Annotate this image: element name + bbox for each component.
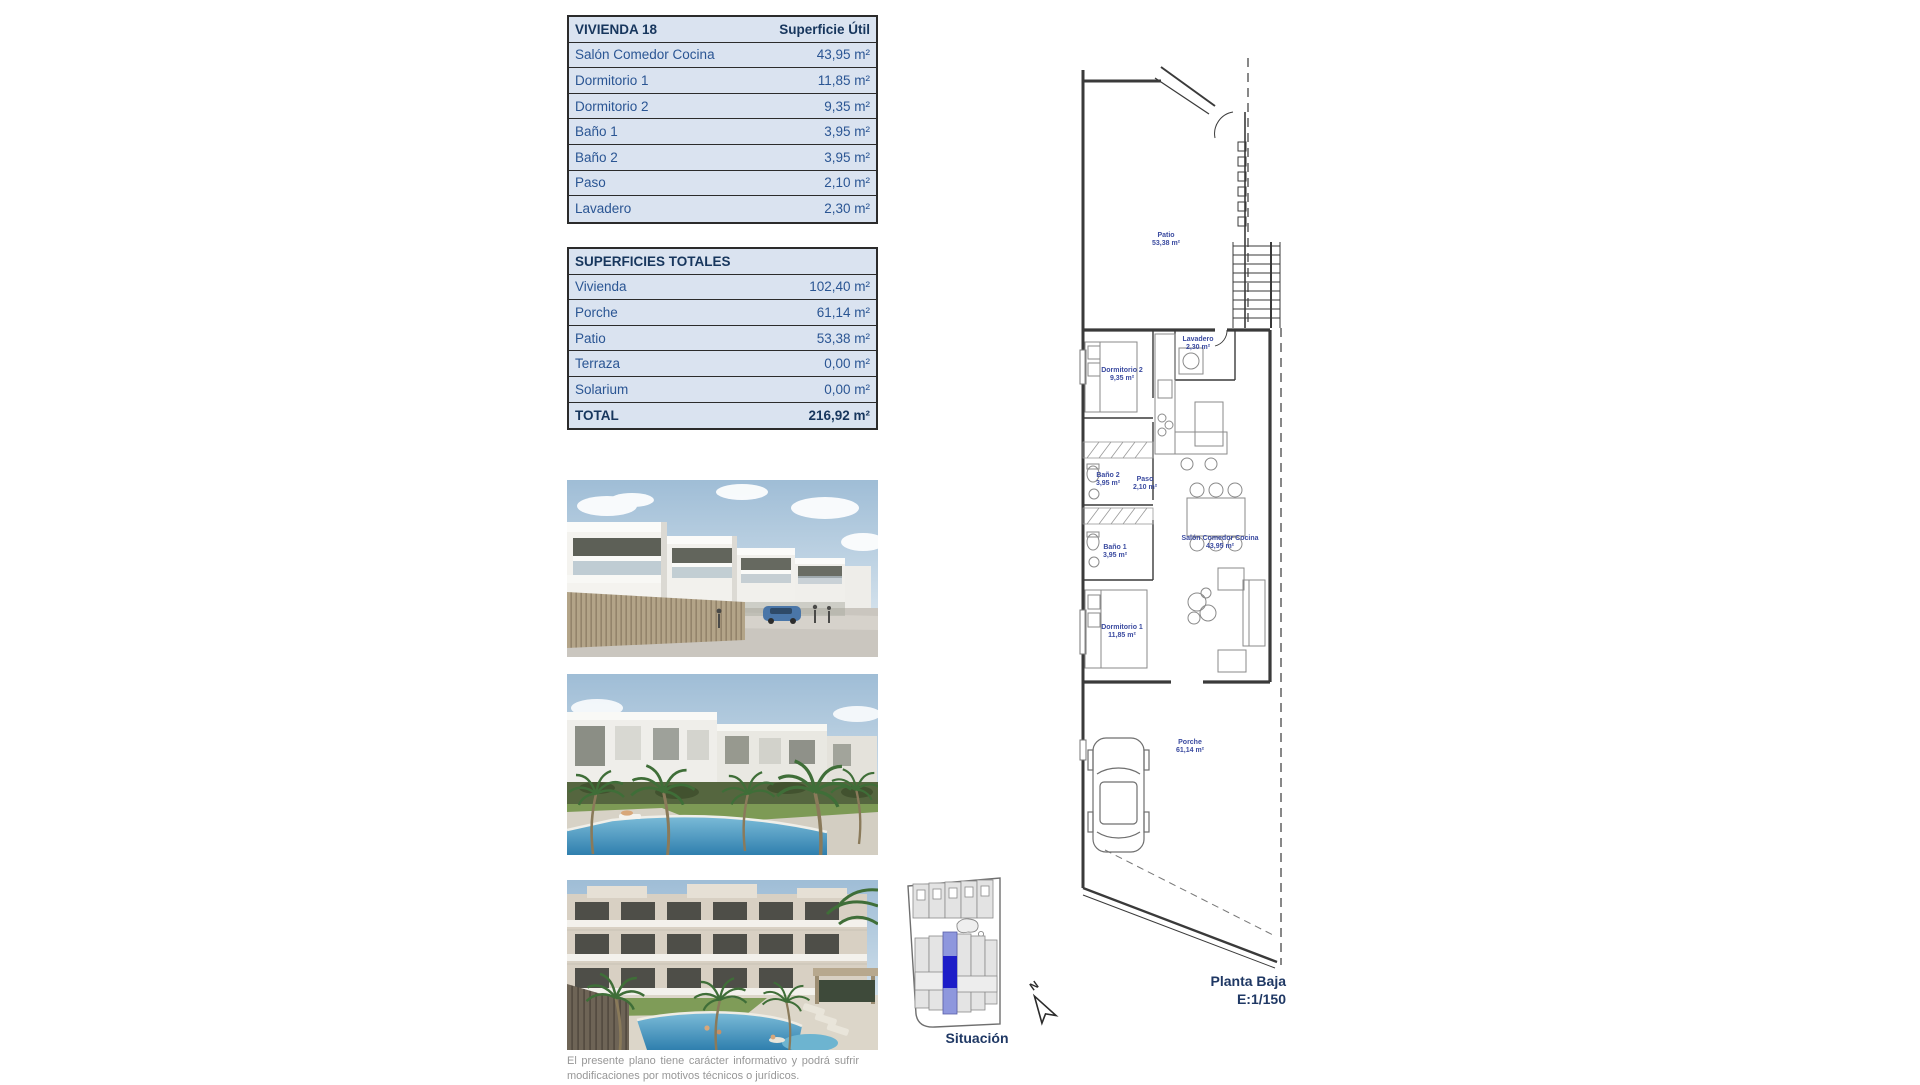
- table-row: Dormitorio 2 9,35 m²: [569, 94, 876, 120]
- table-row: Dormitorio 1 11,85 m²: [569, 68, 876, 94]
- row-label: Paso: [575, 175, 606, 190]
- total-value: 216,92 m²: [808, 408, 870, 423]
- disclaimer-line-1: El presente plano tiene carácter informa…: [567, 1054, 859, 1069]
- row-label: Lavadero: [575, 201, 631, 216]
- render-photo-2-graphic: [567, 674, 878, 855]
- room-area: 3,95 m²: [1090, 552, 1140, 560]
- room-label-dormitorio-1: Dormitorio 1 11,85 m²: [1087, 624, 1157, 641]
- highlighted-unit: [943, 956, 957, 988]
- room-label-bano-1: Baño 1 3,95 m²: [1090, 544, 1140, 561]
- table-row: Vivienda 102,40 m²: [569, 275, 876, 301]
- row-value: 0,00 m²: [824, 356, 870, 371]
- room-label-lavadero: Lavadero 2,30 m²: [1167, 336, 1229, 353]
- room-name: Dormitorio 1: [1087, 624, 1157, 632]
- row-label: Vivienda: [575, 279, 627, 294]
- render-photo-apartments-pool: [567, 880, 878, 1050]
- table-header-value: Superficie Útil: [779, 22, 870, 37]
- row-label: Baño 2: [575, 150, 618, 165]
- table-row: Porche 61,14 m²: [569, 300, 876, 326]
- table-header-row: VIVIENDA 18 Superficie Útil: [569, 17, 876, 43]
- table-title: SUPERFICIES TOTALES: [575, 254, 731, 269]
- floor-plan: Patio 53,38 m² Lavadero 2,30 m² Dormitor…: [1075, 50, 1345, 1010]
- room-label-porche: Porche 61,14 m²: [1160, 739, 1220, 756]
- room-area: 3,95 m²: [1083, 480, 1133, 488]
- plan-title: Planta Baja: [1136, 973, 1286, 991]
- north-letter: N: [1028, 979, 1042, 993]
- superficies-totales-table: SUPERFICIES TOTALES Vivienda 102,40 m² P…: [567, 247, 878, 430]
- table-row: Solarium 0,00 m²: [569, 377, 876, 403]
- row-label: Porche: [575, 305, 618, 320]
- room-area: 2,10 m²: [1127, 484, 1163, 492]
- render-photo-pool-palms: [567, 674, 878, 855]
- north-arrow-icon: N: [1020, 975, 1070, 1037]
- table-row: Terraza 0,00 m²: [569, 351, 876, 377]
- row-label: Dormitorio 1: [575, 73, 649, 88]
- row-value: 9,35 m²: [824, 99, 870, 114]
- table-row: Baño 1 3,95 m²: [569, 119, 876, 145]
- table-header-row: SUPERFICIES TOTALES: [569, 249, 876, 275]
- room-name: Baño 2: [1083, 472, 1133, 480]
- room-area: 2,30 m²: [1167, 344, 1229, 352]
- row-value: 2,10 m²: [824, 175, 870, 190]
- row-value: 3,95 m²: [824, 124, 870, 139]
- room-area: 11,85 m²: [1087, 632, 1157, 640]
- situacion-map: [905, 876, 1005, 1030]
- row-label: Salón Comedor Cocina: [575, 47, 715, 62]
- room-label-bano-2: Baño 2 3,95 m²: [1083, 472, 1133, 489]
- row-label: Dormitorio 2: [575, 99, 649, 114]
- table-row: Baño 2 3,95 m²: [569, 145, 876, 171]
- room-name: Baño 1: [1090, 544, 1140, 552]
- room-area: 9,35 m²: [1087, 375, 1157, 383]
- table-title: VIVIENDA 18: [575, 22, 657, 37]
- row-value: 3,95 m²: [824, 150, 870, 165]
- row-label: Terraza: [575, 356, 620, 371]
- vivienda-areas-table: VIVIENDA 18 Superficie Útil Salón Comedo…: [567, 15, 878, 224]
- render-photo-terraced-houses: [567, 480, 878, 657]
- room-area: 53,38 m²: [1126, 240, 1206, 248]
- disclaimer-line-2: modificaciones por motivos técnicos o ju…: [567, 1069, 859, 1084]
- row-value: 53,38 m²: [817, 331, 870, 346]
- room-name: Lavadero: [1167, 336, 1229, 344]
- room-name: Dormitorio 2: [1087, 367, 1157, 375]
- row-label: Baño 1: [575, 124, 618, 139]
- room-name: Patio: [1126, 232, 1206, 240]
- row-value: 43,95 m²: [817, 47, 870, 62]
- plan-title-block: Planta Baja E:1/150: [1136, 973, 1286, 1008]
- room-area: 43,95 m²: [1165, 543, 1275, 551]
- table-row: Paso 2,10 m²: [569, 171, 876, 197]
- render-photo-3-graphic: [567, 880, 878, 1050]
- row-value: 11,85 m²: [818, 73, 870, 88]
- row-value: 0,00 m²: [824, 382, 870, 397]
- disclaimer-text: El presente plano tiene carácter informa…: [567, 1054, 859, 1085]
- table-row: Salón Comedor Cocina 43,95 m²: [569, 43, 876, 69]
- situacion-label: Situación: [927, 1030, 1027, 1046]
- plan-scale: E:1/150: [1136, 991, 1286, 1009]
- row-label: Solarium: [575, 382, 628, 397]
- row-value: 61,14 m²: [817, 305, 870, 320]
- room-name: Salón Comedor Cocina: [1165, 535, 1275, 543]
- row-value: 2,30 m²: [824, 201, 870, 216]
- table-total-row: TOTAL 216,92 m²: [569, 403, 876, 429]
- row-value: 102,40 m²: [809, 279, 870, 294]
- situacion-map-graphic: [905, 876, 1005, 1030]
- table-row: Lavadero 2,30 m²: [569, 196, 876, 222]
- room-label-patio: Patio 53,38 m²: [1126, 232, 1206, 249]
- north-arrow: N: [1020, 975, 1070, 1037]
- total-label: TOTAL: [575, 408, 619, 423]
- room-name: Porche: [1160, 739, 1220, 747]
- room-label-paso: Paso 2,10 m²: [1127, 476, 1163, 493]
- render-photo-1-graphic: [567, 480, 878, 657]
- row-label: Patio: [575, 331, 606, 346]
- room-label-dormitorio-2: Dormitorio 2 9,35 m²: [1087, 367, 1157, 384]
- room-name: Paso: [1127, 476, 1163, 484]
- table-row: Patio 53,38 m²: [569, 326, 876, 352]
- floor-plan-graphic: [1075, 50, 1345, 1010]
- room-area: 61,14 m²: [1160, 747, 1220, 755]
- room-label-salon: Salón Comedor Cocina 43,95 m²: [1165, 535, 1275, 552]
